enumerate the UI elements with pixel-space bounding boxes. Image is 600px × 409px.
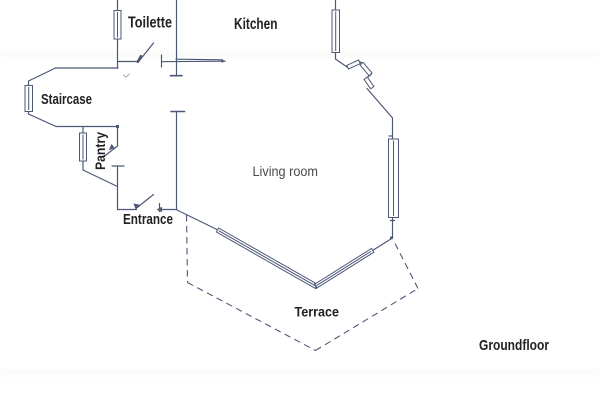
svg-text:Terrace: Terrace (295, 304, 340, 320)
svg-text:Entrance: Entrance (123, 211, 173, 228)
svg-text:Staircase: Staircase (41, 91, 92, 108)
svg-text:Pantry: Pantry (92, 132, 108, 170)
svg-text:Toilette: Toilette (128, 15, 172, 32)
svg-text:Groundfloor: Groundfloor (479, 337, 549, 354)
svg-text:Living room: Living room (253, 163, 319, 179)
svg-text:Kitchen: Kitchen (234, 16, 278, 33)
